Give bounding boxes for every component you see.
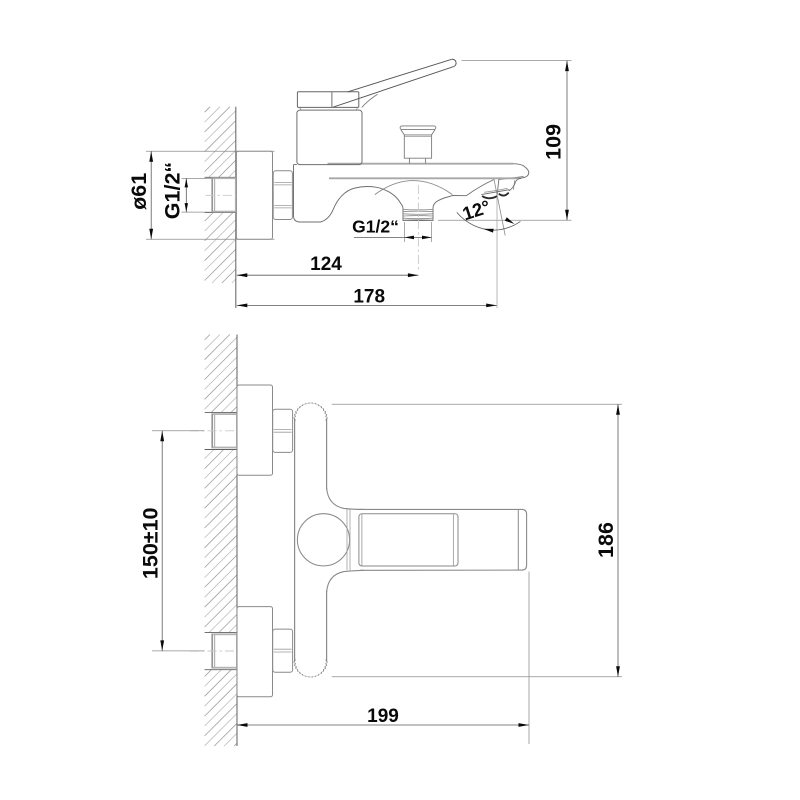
svg-text:ø61: ø61 [127, 173, 151, 210]
svg-text:109: 109 [541, 124, 565, 160]
svg-text:124: 124 [310, 254, 342, 275]
svg-text:G1/2“: G1/2“ [352, 217, 399, 237]
svg-text:199: 199 [367, 706, 399, 727]
svg-text:186: 186 [594, 522, 618, 558]
svg-text:178: 178 [353, 286, 385, 307]
svg-text:150±10: 150±10 [138, 507, 162, 579]
svg-text:G1/2“: G1/2“ [160, 162, 184, 219]
